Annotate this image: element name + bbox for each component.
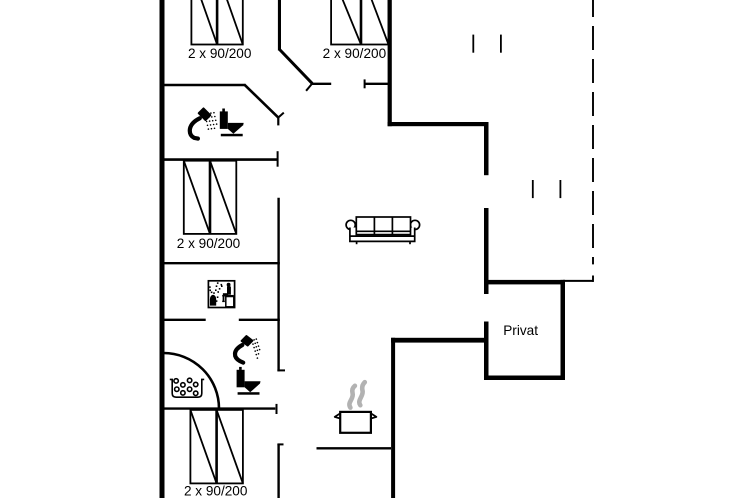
svg-text:2 x 90/200: 2 x 90/200 — [177, 236, 241, 251]
svg-text:2 x 90/200: 2 x 90/200 — [323, 46, 387, 61]
svg-text:2 x 90/200: 2 x 90/200 — [184, 484, 248, 498]
svg-text:2 x 90/200: 2 x 90/200 — [188, 46, 252, 61]
svg-text:Privat: Privat — [503, 323, 538, 338]
